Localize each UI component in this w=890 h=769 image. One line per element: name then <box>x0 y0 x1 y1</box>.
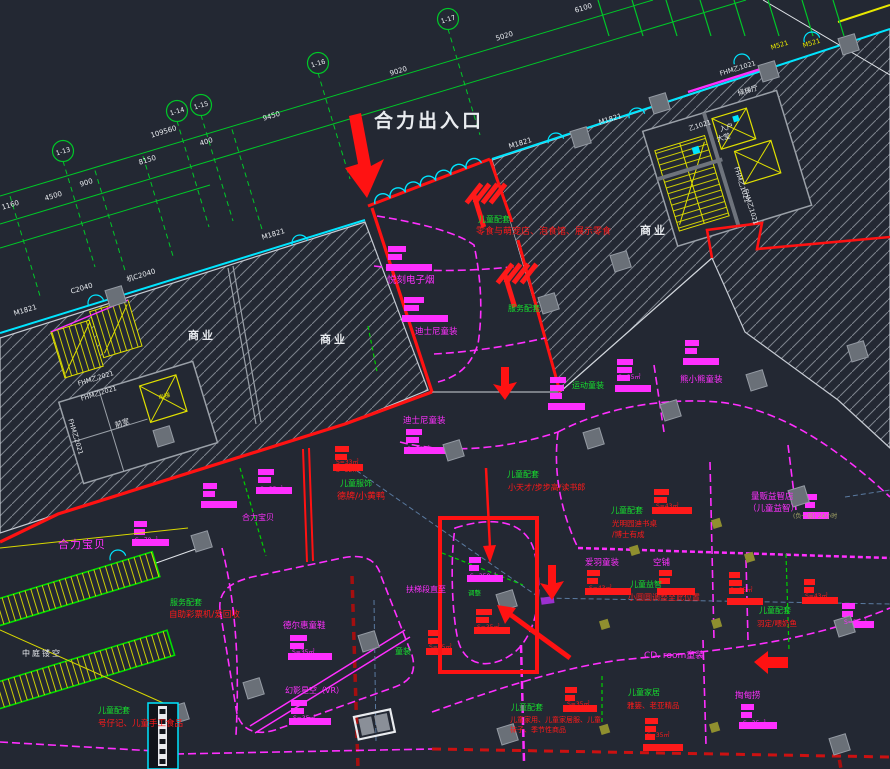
service-block <box>599 724 610 735</box>
column <box>746 370 767 391</box>
fixture-bar <box>615 385 651 392</box>
fixture-bar <box>289 718 331 725</box>
fixture-bar <box>739 722 777 729</box>
column <box>191 531 212 552</box>
fixture-bar <box>548 403 585 410</box>
fixture-bar <box>288 653 332 660</box>
fixture-bar <box>727 598 763 605</box>
column <box>443 440 464 461</box>
service-block <box>711 618 722 629</box>
fixture-bar <box>256 487 292 494</box>
down-arrow-2 <box>540 565 564 600</box>
fixture-bar <box>803 512 829 519</box>
column <box>834 616 855 637</box>
diag-arrow-body <box>511 615 570 658</box>
column <box>583 428 604 449</box>
fixture-bar <box>201 501 237 508</box>
fixture-bar <box>404 447 448 454</box>
service-block <box>599 619 610 630</box>
stair-strip <box>148 703 178 769</box>
fixture-bar <box>132 539 169 546</box>
column <box>497 724 518 745</box>
fixture-bar <box>333 464 363 471</box>
escalator-box <box>354 709 395 739</box>
drawing-layer: 1-131-141-151-161-17 <box>0 0 890 769</box>
fixture-bar <box>657 588 695 595</box>
service-block <box>711 518 722 529</box>
door-arc <box>732 52 750 64</box>
door-arc <box>108 548 126 560</box>
fixture-bar <box>652 507 692 514</box>
left-arrow <box>754 651 788 674</box>
cad-floorplan-canvas: 1-131-141-151-161-17 <box>0 0 890 769</box>
fixture-bar <box>585 588 631 595</box>
column <box>243 678 264 699</box>
fixture-bar <box>563 705 597 712</box>
service-block <box>629 545 640 556</box>
fixture-bar <box>474 627 510 634</box>
service-block <box>709 722 720 733</box>
fixture-bar <box>386 264 432 271</box>
fixture-bar <box>402 315 448 322</box>
column <box>829 734 850 755</box>
fixture-bar <box>467 575 503 582</box>
atrium-escalators <box>0 528 188 709</box>
entrance-arrow <box>345 113 384 198</box>
fixture-bar <box>683 358 719 365</box>
fixture-bar <box>643 744 683 751</box>
thin-arrow-body <box>486 468 490 548</box>
fixture-bar <box>802 597 838 604</box>
